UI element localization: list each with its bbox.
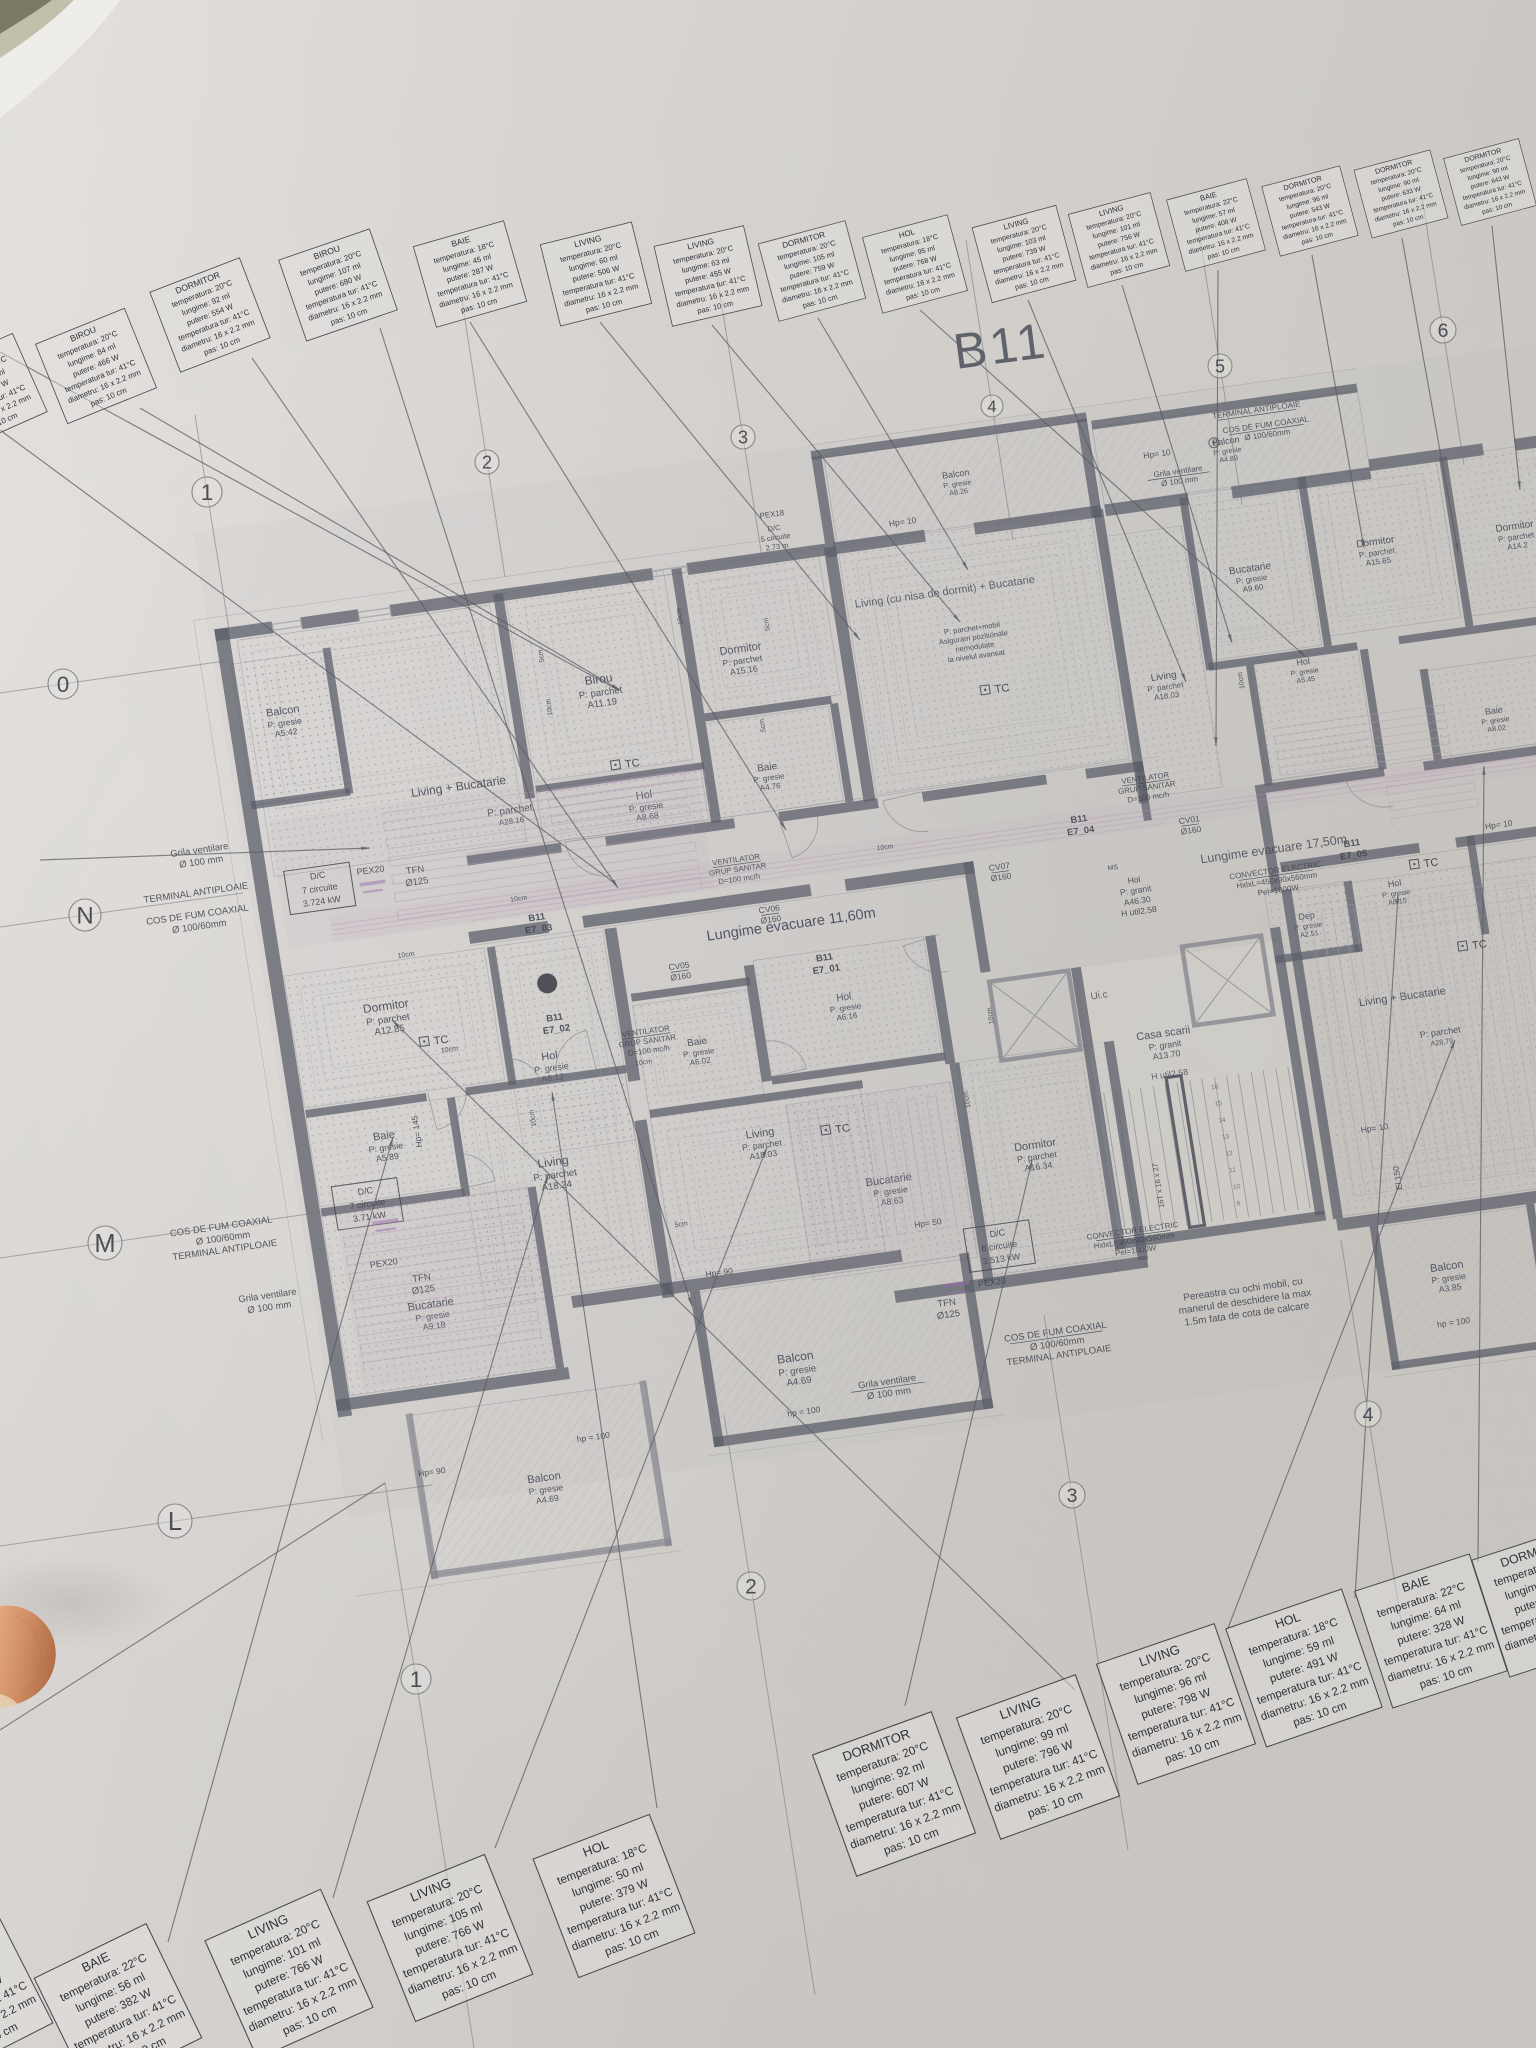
svg-text:4: 4 <box>1363 1404 1374 1426</box>
svg-text:2: 2 <box>745 1576 757 1599</box>
svg-text:TC: TC <box>994 682 1010 696</box>
svg-text:N: N <box>76 903 93 930</box>
svg-text:MS: MS <box>1107 864 1119 872</box>
svg-text:1: 1 <box>201 480 214 505</box>
svg-text:Ui.c: Ui.c <box>1090 989 1109 1002</box>
svg-text:0: 0 <box>57 672 70 697</box>
svg-text:4: 4 <box>987 398 996 416</box>
svg-text:1: 1 <box>410 1667 423 1692</box>
svg-text:5: 5 <box>1215 356 1225 376</box>
svg-text:3: 3 <box>1067 1485 1078 1507</box>
svg-text:TC: TC <box>1471 938 1487 952</box>
svg-text:Hol: Hol <box>1387 878 1402 890</box>
svg-text:M: M <box>94 1230 115 1258</box>
svg-text:L: L <box>168 1508 182 1536</box>
svg-text:TC: TC <box>1423 856 1439 870</box>
svg-text:3: 3 <box>738 427 748 447</box>
svg-text:6: 6 <box>1438 320 1449 342</box>
svg-text:TC: TC <box>624 757 640 771</box>
svg-text:TC: TC <box>433 1034 449 1048</box>
svg-text:2: 2 <box>482 452 492 472</box>
svg-text:TC: TC <box>834 1122 850 1136</box>
